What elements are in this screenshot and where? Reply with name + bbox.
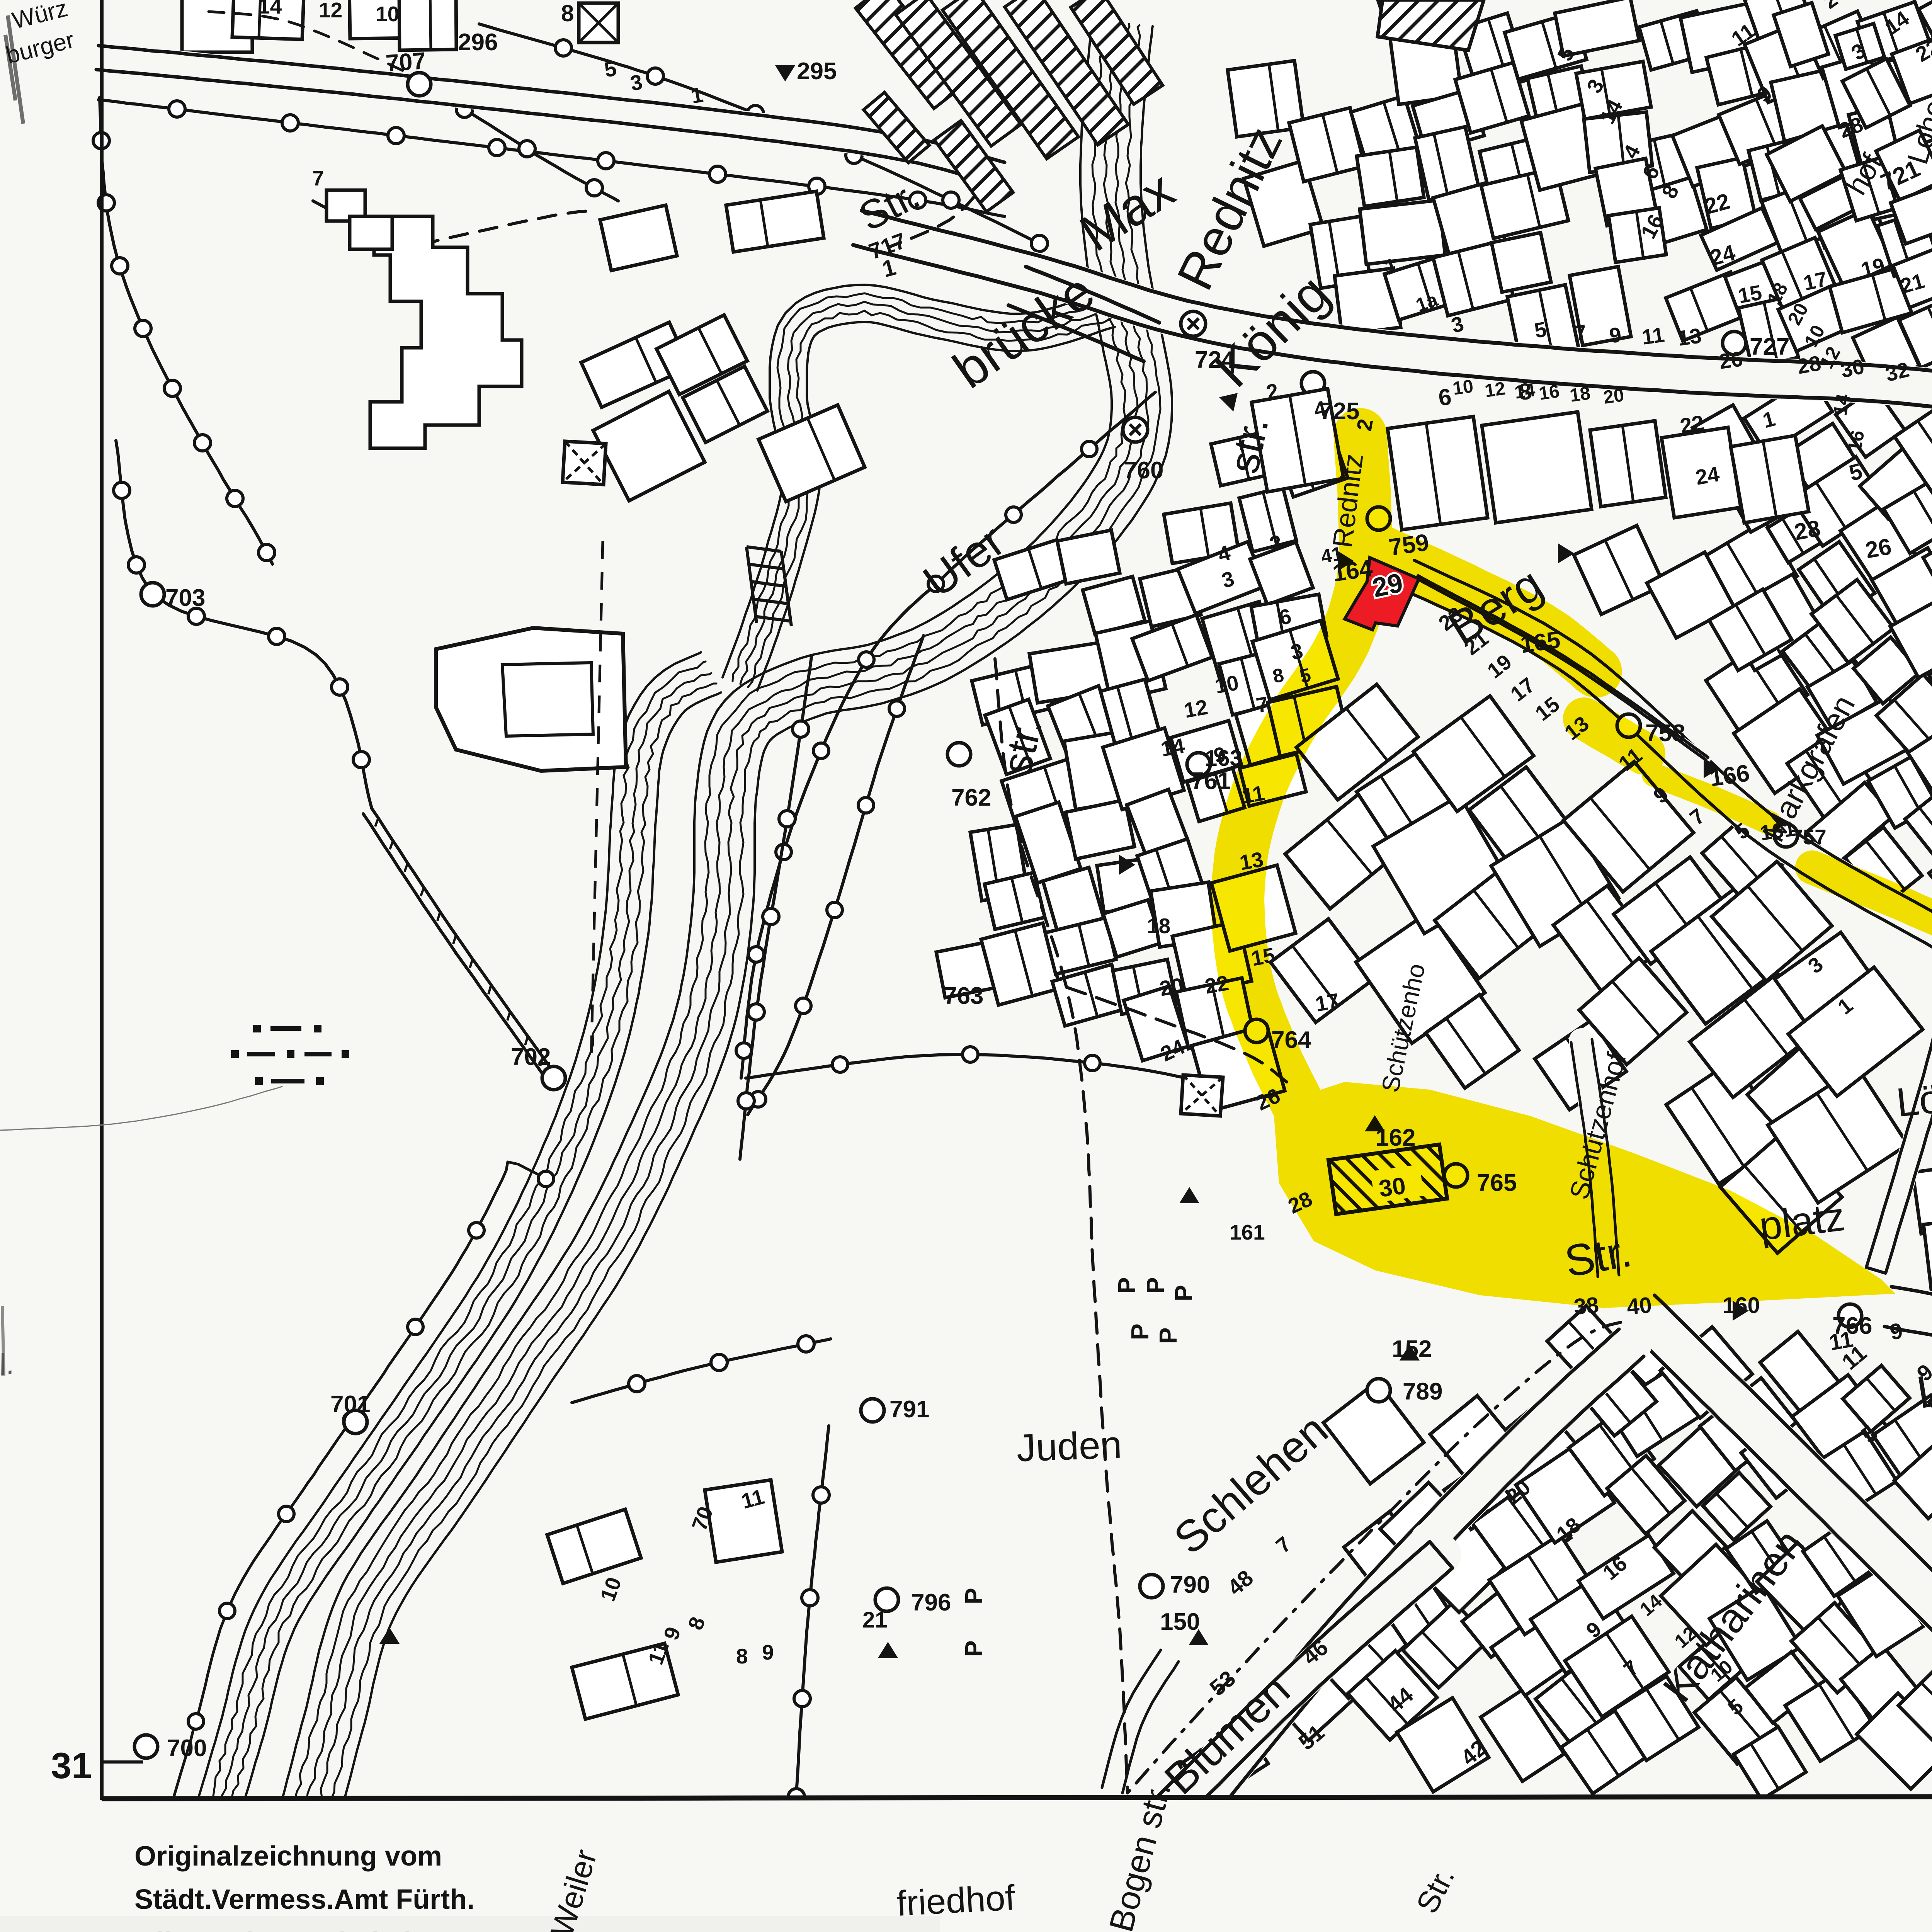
svg-text:161: 161 [1759, 816, 1797, 845]
svg-text:6: 6 [1437, 384, 1452, 411]
svg-text:28: 28 [1793, 515, 1822, 545]
svg-text:Originalzeichnung vom: Originalzeichnung vom [134, 1841, 442, 1872]
svg-text:15: 15 [1249, 943, 1277, 971]
svg-text:760: 760 [1124, 457, 1163, 484]
svg-text:11: 11 [1640, 322, 1666, 349]
svg-text:15: 15 [1736, 280, 1764, 308]
svg-text:295: 295 [797, 58, 837, 85]
svg-text:14: 14 [1829, 392, 1854, 417]
svg-text:P: P [1170, 1285, 1197, 1301]
svg-text:14: 14 [1159, 733, 1186, 761]
svg-text:22: 22 [1203, 971, 1230, 998]
svg-text:Städt.Vermess.Amt Fürth.: Städt.Vermess.Amt Fürth. [134, 1884, 474, 1915]
svg-text:P: P [1126, 1323, 1154, 1340]
svg-text:763: 763 [944, 983, 983, 1009]
svg-text:12: 12 [319, 0, 342, 22]
svg-text:P: P [960, 1588, 988, 1604]
svg-text:P: P [1113, 1277, 1141, 1294]
svg-text:26: 26 [1864, 533, 1893, 563]
svg-text:14: 14 [1513, 380, 1537, 403]
svg-text:727: 727 [1750, 333, 1789, 360]
svg-text:162: 162 [1376, 1124, 1415, 1151]
svg-text:707: 707 [385, 48, 427, 77]
svg-text:Alle Rechte vorbehalten!: Alle Rechte vorbehalten! [136, 1927, 462, 1932]
svg-text:12: 12 [1182, 695, 1209, 723]
svg-text:Juden: Juden [1016, 1423, 1122, 1470]
svg-text:10: 10 [376, 2, 399, 26]
svg-text:165: 165 [1519, 626, 1562, 658]
svg-text:703: 703 [165, 585, 205, 611]
svg-text:18: 18 [1147, 914, 1170, 938]
svg-text:38: 38 [1573, 1293, 1600, 1320]
svg-text:31: 31 [51, 1745, 92, 1786]
svg-text:16: 16 [1844, 429, 1869, 454]
svg-text:30: 30 [1838, 354, 1867, 382]
svg-text:17: 17 [1801, 267, 1830, 295]
svg-text:761: 761 [1191, 768, 1231, 794]
svg-text:11: 11 [1240, 781, 1266, 808]
svg-text:762: 762 [951, 784, 991, 811]
svg-text:30: 30 [1377, 1172, 1407, 1202]
svg-text:40: 40 [1626, 1293, 1653, 1320]
svg-text:P: P [1154, 1327, 1182, 1344]
svg-text:790: 790 [1170, 1571, 1210, 1598]
svg-text:20: 20 [1158, 973, 1185, 1001]
svg-text:13: 13 [1676, 323, 1703, 350]
svg-text:29: 29 [1370, 567, 1405, 603]
svg-text:21: 21 [862, 1607, 888, 1633]
svg-text:8: 8 [561, 0, 574, 26]
svg-text:16: 16 [1537, 381, 1561, 404]
svg-text:26: 26 [1718, 347, 1744, 374]
svg-text:22: 22 [1678, 410, 1706, 438]
svg-text:764: 764 [1271, 1027, 1311, 1053]
svg-text:13: 13 [1238, 847, 1265, 875]
svg-text:702: 702 [511, 1044, 551, 1070]
svg-text:724: 724 [1195, 347, 1235, 373]
svg-text:759: 759 [1387, 529, 1430, 561]
svg-text:161: 161 [1230, 1220, 1265, 1244]
svg-text:24: 24 [1694, 462, 1721, 490]
svg-text:791: 791 [889, 1396, 929, 1423]
svg-text:765: 765 [1477, 1170, 1517, 1196]
svg-text:166: 166 [1708, 760, 1751, 792]
svg-text:10: 10 [1213, 670, 1240, 698]
svg-text:296: 296 [458, 29, 498, 56]
svg-text:41: 41 [1319, 543, 1344, 568]
svg-text:14: 14 [258, 0, 282, 18]
svg-text:friedhof: friedhof [896, 1878, 1016, 1923]
svg-text:P: P [960, 1640, 988, 1657]
svg-text:12: 12 [1483, 378, 1507, 401]
svg-text:700: 700 [167, 1735, 207, 1762]
svg-text:152: 152 [1392, 1336, 1432, 1362]
svg-text:150: 150 [1160, 1609, 1200, 1635]
svg-text:160: 160 [1723, 1293, 1760, 1318]
svg-text:10: 10 [1451, 376, 1475, 399]
svg-text:28: 28 [1795, 351, 1823, 379]
svg-text:789: 789 [1403, 1378, 1442, 1405]
svg-text:20: 20 [1602, 385, 1625, 408]
svg-text:7: 7 [312, 166, 324, 190]
svg-text:758: 758 [1645, 720, 1685, 747]
svg-text:9: 9 [762, 1640, 774, 1664]
svg-text:17: 17 [1313, 988, 1341, 1016]
svg-text:701: 701 [330, 1391, 370, 1418]
svg-text:18: 18 [1568, 383, 1592, 406]
svg-text:P: P [1141, 1277, 1169, 1294]
svg-text:8: 8 [736, 1644, 748, 1668]
svg-text:796: 796 [911, 1589, 951, 1616]
